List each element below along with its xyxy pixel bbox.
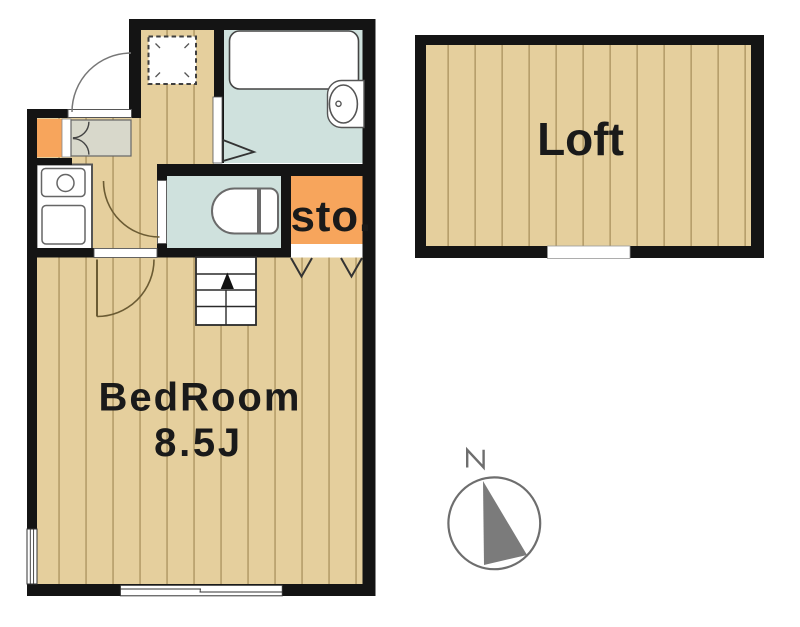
svg-text:BedRoom: BedRoom xyxy=(99,376,302,420)
svg-text:Loft: Loft xyxy=(537,113,624,165)
svg-text:8.5J: 8.5J xyxy=(154,421,243,465)
svg-text:sto.: sto. xyxy=(291,192,372,241)
